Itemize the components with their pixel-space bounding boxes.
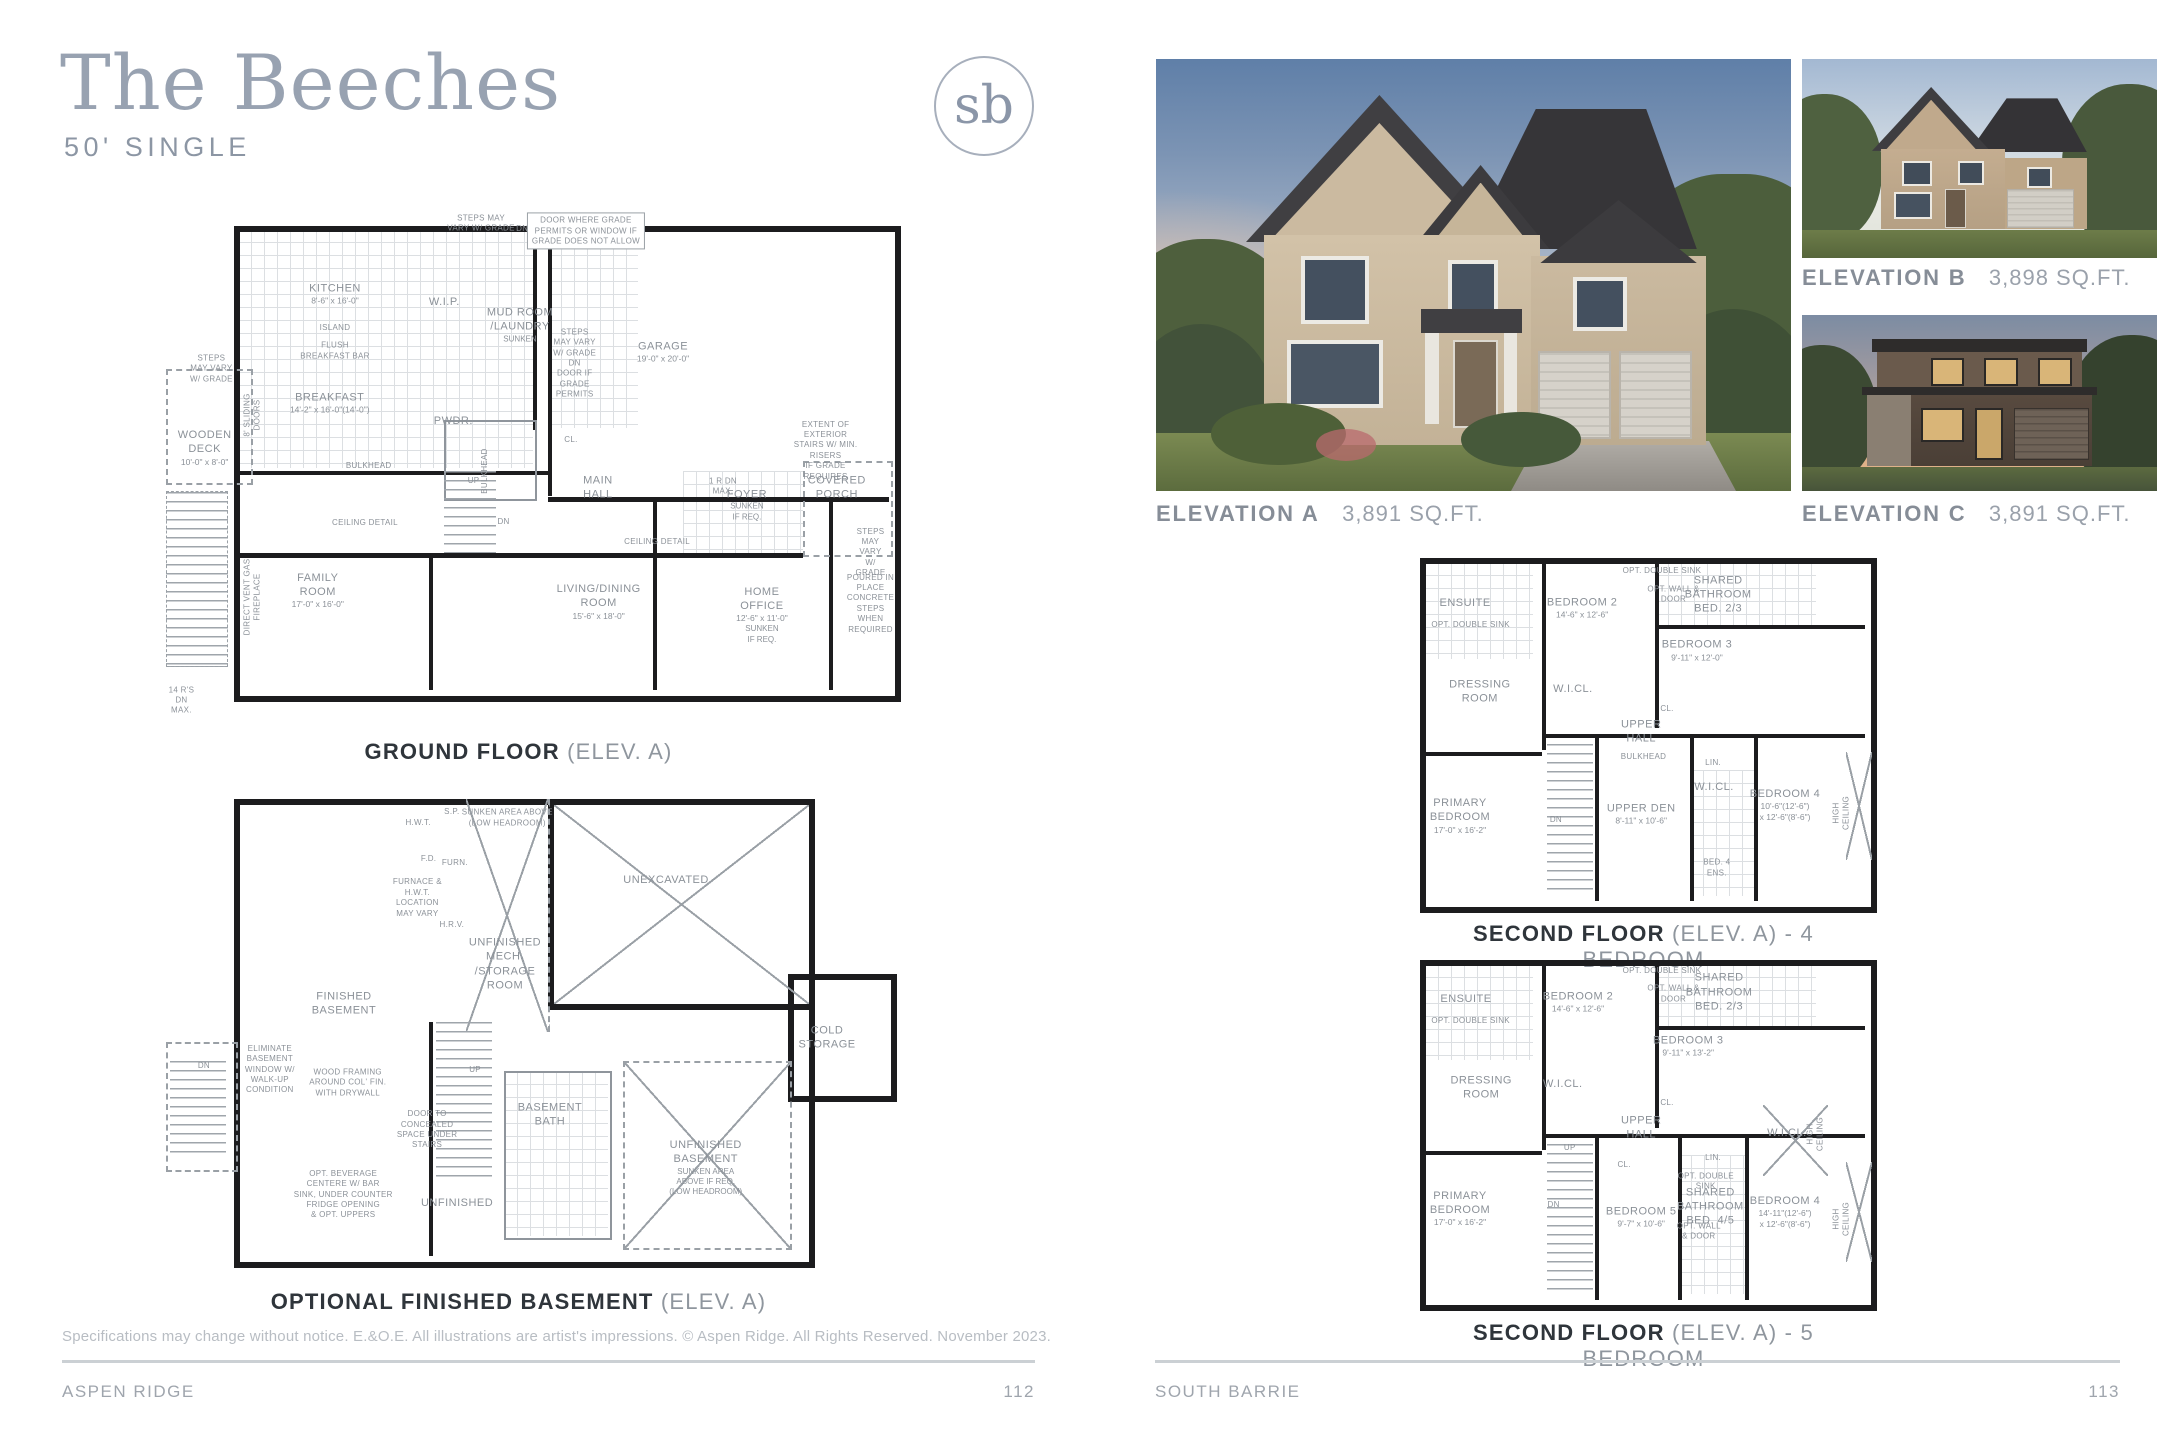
caption-light: (ELEV. A)	[661, 1289, 766, 1314]
room-label: DRESSING ROOM	[1449, 678, 1510, 707]
room-label: STEPS MAY VARY W/ GRADE	[190, 353, 233, 384]
footer-right-label: SOUTH BARRIE	[1155, 1382, 1301, 1402]
window	[1921, 408, 1964, 442]
window	[1902, 161, 1932, 186]
room-label: CL.	[1617, 1160, 1630, 1170]
room-label: W.I.CL.	[1694, 780, 1734, 794]
room-label: MUD ROOM /LAUNDRYSUNKEN	[487, 306, 553, 345]
sb-logo-text: sb	[954, 76, 1014, 136]
room-label: 1 R DN MAX.	[709, 476, 737, 497]
wall	[234, 553, 803, 558]
room-label: OPT. WALL & DOOR	[1677, 1221, 1721, 1242]
ground-floor-caption: GROUND FLOOR (ELEV. A)	[144, 739, 893, 765]
bath-wall	[504, 1071, 613, 1240]
room-label: BULKHEAD	[1621, 752, 1667, 762]
room-label: BEDROOM 59'-7" x 10'-6"	[1606, 1204, 1677, 1229]
room-label: HIGH CEILING	[1831, 796, 1852, 830]
room-label: STEPS MAY VARY W/ GRADE DN DOOR IF GRADE…	[553, 328, 596, 401]
garage-door	[2014, 408, 2090, 461]
elevation-c-sqft: 3,891 SQ.FT.	[1989, 501, 2131, 526]
front-door	[1945, 189, 1966, 228]
wall	[548, 226, 552, 496]
room-label: DN	[1550, 815, 1562, 825]
room-label: 14 R'S DN MAX.	[169, 685, 195, 716]
room-label: CL.	[1660, 1098, 1673, 1108]
room-label: GARAGE19'-0" x 20'-0"	[637, 339, 689, 364]
room-label: UPPER HALL	[1621, 1114, 1661, 1143]
house	[1246, 95, 1706, 445]
wall	[1420, 752, 1542, 756]
basement-plan: FINISHED BASEMENTUNFINISHED MECH. /STORA…	[144, 789, 893, 1275]
porch-roof	[1421, 309, 1522, 334]
footer-divider-right	[1155, 1360, 2120, 1363]
lawn	[1802, 230, 2157, 258]
photo-elevation-b	[1802, 59, 2157, 258]
elevation-a-caption: ELEVATION A 3,891 SQ.FT.	[1156, 501, 1484, 527]
stairs	[1547, 1144, 1593, 1290]
room-label: DN	[1548, 1200, 1560, 1210]
window	[1984, 358, 2017, 386]
caption-bold: SECOND FLOOR	[1473, 921, 1665, 946]
window	[1301, 256, 1369, 324]
garage-door	[1619, 351, 1692, 439]
house	[1872, 87, 2087, 229]
room-label: KITCHEN8'-6" x 16'-0"	[309, 281, 361, 306]
elevation-b-label: ELEVATION B	[1802, 265, 1966, 290]
porch-column	[1425, 333, 1439, 424]
room-label: W.I.CL.	[1543, 1077, 1583, 1091]
room-label: FAMILY ROOM17'-0" x 16'-0"	[292, 571, 344, 611]
flower-bush	[1316, 429, 1376, 461]
room-label: MAIN HALL	[583, 474, 613, 503]
room-label: BEDROOM 414'-11"(12'-6") x 12'-6"(8'-6")	[1750, 1194, 1821, 1230]
room-label: STEPS MAY VARY W/ GRADE	[856, 527, 886, 579]
window	[1287, 340, 1382, 408]
room-label: PRIMARY BEDROOM17'-0" x 16'-2"	[1430, 1189, 1490, 1229]
room-label: ENSUITE	[1440, 992, 1491, 1006]
wall	[1542, 558, 1546, 749]
room-label: UPPER DEN8'-11" x 10'-6"	[1607, 801, 1676, 826]
room-label: W.I.CL.	[1553, 682, 1593, 696]
wall	[1542, 734, 1865, 738]
second-floor-5br-plan: ENSUITEOPT. DOUBLE SINKBEDROOM 214'-6" x…	[1413, 955, 1874, 1312]
room-label: BASEMENT BATH	[518, 1100, 583, 1129]
garage-door	[2007, 189, 2074, 228]
mech-room-area	[466, 799, 550, 1032]
roof-band-upper	[1872, 339, 2088, 352]
room-label: UNEXCAVATED	[623, 873, 709, 887]
roof-hip	[1969, 98, 2087, 152]
window	[1931, 358, 1964, 386]
roof-band-lower	[1862, 387, 2097, 395]
porch-column	[1504, 333, 1518, 424]
room-label: F.D.	[421, 854, 436, 864]
room-label: BREAKFAST14'-2" x 16'-0"(14'-0")	[290, 390, 370, 415]
room-label: UPPER HALL	[1621, 718, 1661, 747]
room-label: H.R.V.	[440, 920, 465, 930]
room-label: HIGH CEILING	[1831, 1202, 1852, 1236]
caption-bold: GROUND FLOOR	[365, 739, 560, 764]
room-label: SHARED BATHROOM BED. 2/3	[1685, 573, 1752, 616]
exterior-stairs	[166, 491, 228, 666]
front-door	[1975, 408, 2004, 460]
wall	[1655, 625, 1865, 629]
wall	[1690, 734, 1694, 902]
elevation-c-label: ELEVATION C	[1802, 501, 1966, 526]
room-label: DRESSING ROOM	[1450, 1074, 1511, 1103]
elevation-a-sqft: 3,891 SQ.FT.	[1342, 501, 1484, 526]
room-label: FLUSH BREAKFAST BAR	[300, 341, 370, 362]
caption-bold: SECOND FLOOR	[1473, 1320, 1665, 1345]
brochure-page: The Beeches 50' SINGLE sb KITCHEN8'-6" x…	[0, 0, 2160, 1440]
room-label: UNFINISHED MECH. /STORAGE ROOM	[469, 935, 541, 992]
room-label: UNFINISHED BASEMENTSUNKEN AREA ABOVE IF …	[669, 1138, 742, 1198]
room-label: POURED IN PLACE CONCRETE STEPS WHEN REQU…	[847, 572, 894, 634]
room-label: COLD STORAGE	[799, 1024, 856, 1053]
room-label: S.P.	[444, 807, 459, 817]
room-label: PRIMARY BEDROOM17'-0" x 16'-2"	[1430, 796, 1490, 836]
wall	[1595, 734, 1599, 902]
photo-elevation-a	[1156, 59, 1791, 491]
wall	[429, 553, 433, 691]
walkup-stairs	[170, 1061, 226, 1158]
disclaimer-text: Specifications may change without notice…	[62, 1328, 1051, 1345]
room-label: UP	[468, 476, 480, 486]
bush	[1461, 412, 1581, 467]
room-label: OPT. DOUBLE SINK	[1431, 1016, 1510, 1026]
room-label: DOOR WHERE GRADE PERMITS OR WINDOW IF GR…	[527, 213, 645, 250]
lawn	[1802, 467, 2157, 491]
room-label: DOOR TO CONCEALED SPACE UNDER STAIRS	[397, 1109, 458, 1151]
room-label: FURN.	[442, 858, 468, 868]
room-label: W.I.P.	[429, 295, 460, 309]
wall	[1655, 1026, 1865, 1030]
basement-caption: OPTIONAL FINISHED BASEMENT (ELEV. A)	[144, 1289, 893, 1315]
wall	[1745, 1134, 1749, 1300]
room-label: BED. 4 ENS.	[1703, 858, 1730, 879]
room-label: FURNACE & H.W.T. LOCATION MAY VARY	[393, 878, 442, 920]
wall	[653, 497, 657, 691]
ground-floor-plan: KITCHEN8'-6" x 16'-0"ISLANDFLUSH BREAKFA…	[144, 216, 893, 726]
room-label: ELIMINATE BASEMENT WINDOW W/ WALK-UP CON…	[245, 1044, 295, 1096]
wall	[1595, 1134, 1599, 1300]
room-label: SHARED BATHROOM BED. 2/3	[1686, 971, 1753, 1014]
footer-right-page-number: 113	[2088, 1382, 2120, 1402]
elevation-b-caption: ELEVATION B 3,898 SQ.FT.	[1802, 265, 2131, 291]
room-label: BULKHEAD	[480, 448, 490, 494]
footer-right: SOUTH BARRIE 113	[1155, 1382, 2120, 1402]
elevation-a-label: ELEVATION A	[1156, 501, 1320, 526]
window	[2038, 358, 2071, 386]
room-label: UNFINISHED	[421, 1196, 493, 1210]
room-label: UP	[1564, 1143, 1576, 1153]
wall	[1420, 1151, 1542, 1155]
caption-light: (ELEV. A)	[567, 739, 672, 764]
room-label: LIN.	[1705, 1153, 1721, 1163]
room-label: HIGH CEILING	[1806, 1105, 1827, 1163]
sb-logo: sb	[934, 56, 1034, 156]
room-label: ISLAND	[320, 323, 351, 333]
room-label: DN	[497, 517, 509, 527]
room-label: BEDROOM 39'-11" x 12'-0"	[1662, 638, 1733, 663]
room-label: BEDROOM 214'-6" x 12'-6"	[1547, 595, 1618, 620]
room-label: BEDROOM 39'-11" x 13'-2"	[1653, 1033, 1724, 1058]
window	[1958, 161, 1984, 185]
room-label: UP	[469, 1065, 481, 1075]
room-label: STEPS MAY VARY W/ GRADE	[447, 213, 514, 234]
footer-left-page-number: 112	[1003, 1382, 1035, 1402]
room-label: CEILING DETAIL	[624, 537, 690, 547]
room-label: BULKHEAD	[346, 461, 392, 471]
footer-left-label: ASPEN RIDGE	[62, 1382, 195, 1402]
footer-left: ASPEN RIDGE 112	[62, 1382, 1035, 1402]
room-label: OPT. BEVERAGE CENTERE W/ BAR SINK, UNDER…	[294, 1169, 393, 1221]
room-label: DN	[198, 1061, 210, 1071]
room-label: DIRECT VENT GAS FIREPLACE	[243, 559, 264, 636]
page-subtitle: 50' SINGLE	[64, 132, 251, 163]
window	[2027, 167, 2053, 188]
page-title: The Beeches	[60, 38, 561, 127]
room-label: H.W.T.	[405, 818, 430, 828]
room-label: LIN.	[1705, 758, 1721, 768]
stone-panel	[1867, 395, 1911, 466]
house	[1857, 339, 2102, 466]
stairs	[436, 1022, 492, 1178]
room-label: CL.	[564, 435, 577, 445]
room-label: LIVING/DINING ROOM15'-6" x 18'-0"	[557, 582, 641, 622]
room-label: 8' SLIDING DOORS	[242, 393, 263, 436]
room-label: BEDROOM 410'-6"(12'-6") x 12'-6"(8'-6")	[1750, 787, 1821, 823]
room-label: WOOD FRAMING AROUND COL' FIN. WITH DRYWA…	[309, 1067, 386, 1098]
room-label: CL.	[1660, 704, 1673, 714]
room-label: HOME OFFICE12'-6" x 11'-0"SUNKEN IF REQ.	[736, 585, 788, 645]
room-label: ENSUITE	[1439, 596, 1490, 610]
room-label: EXTENT OF EXTERIOR STAIRS W/ MIN. RISERS…	[792, 419, 859, 481]
room-label: CEILING DETAIL	[332, 518, 398, 528]
window	[1573, 277, 1627, 331]
caption-bold: OPTIONAL FINISHED BASEMENT	[271, 1289, 654, 1314]
room-label: WOODEN DECK10'-0" x 8'-0"	[178, 428, 232, 468]
elevation-c-caption: ELEVATION C 3,891 SQ.FT.	[1802, 501, 2131, 527]
photo-elevation-c	[1802, 315, 2157, 491]
second-floor-4br-plan: ENSUITEOPT. DOUBLE SINKBEDROOM 214'-6" x…	[1413, 553, 1874, 914]
window	[1894, 192, 1932, 219]
room-label: OPT. DOUBLE SINK	[1431, 620, 1510, 630]
room-label: FINISHED BASEMENT	[312, 990, 377, 1019]
elevation-b-sqft: 3,898 SQ.FT.	[1989, 265, 2131, 290]
second-floor-5br-caption: SECOND FLOOR (ELEV. A) - 5 BEDROOM	[1413, 1320, 1874, 1372]
footer-divider-left	[62, 1360, 1035, 1363]
room-label: BEDROOM 214'-6" x 12'-6"	[1543, 989, 1614, 1014]
unexcavated-area	[548, 799, 815, 1010]
room-label: W.I.CL.	[1767, 1126, 1807, 1140]
room-label: PWDR.	[434, 414, 473, 428]
room-label: SUNKEN AREA ABOVE (LOW HEADROOM)	[462, 808, 553, 829]
